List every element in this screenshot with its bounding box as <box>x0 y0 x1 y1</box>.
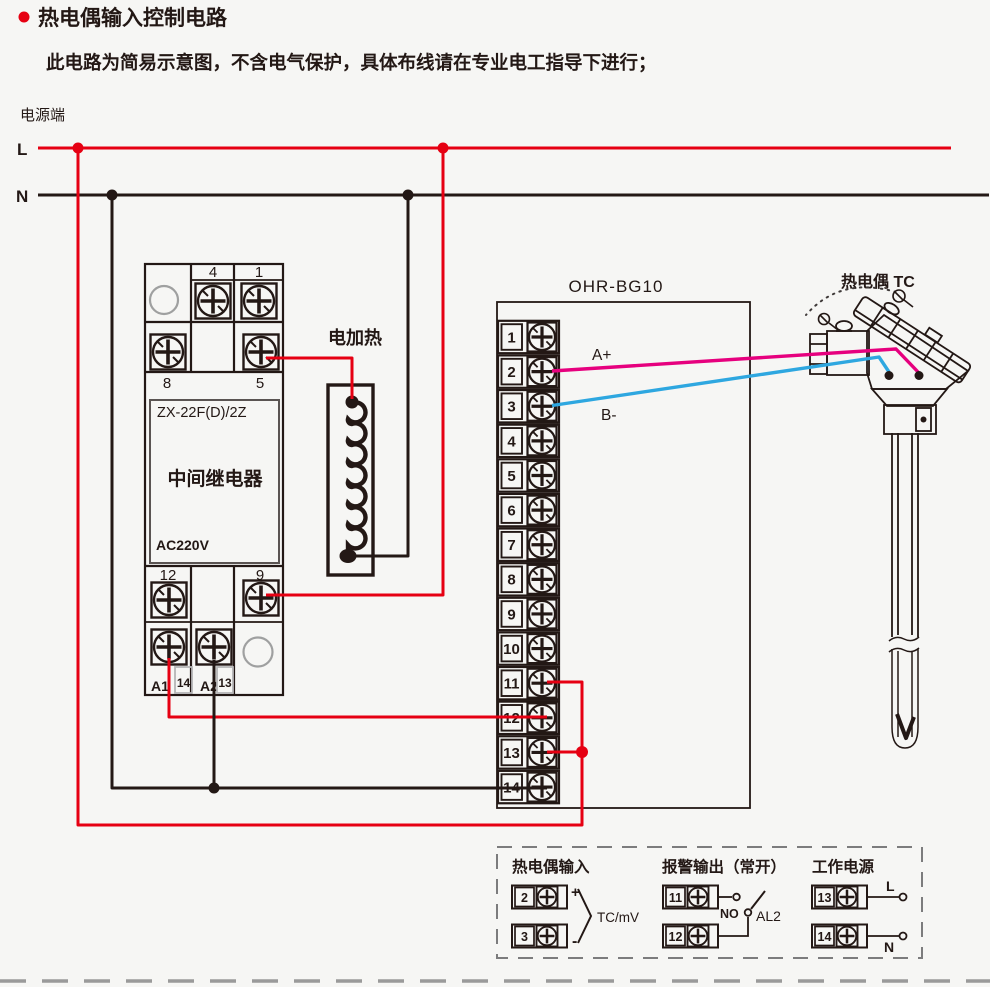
legend-section-title: 热电偶输入 <box>512 857 590 876</box>
ohr-terminal-number: 13 <box>503 745 520 762</box>
legend-terminal-3: 3 <box>512 925 567 948</box>
legend-terminal-screw <box>537 926 558 947</box>
heater-label: 电加热 <box>328 327 382 348</box>
ohr-terminal-8: 8 <box>498 563 559 595</box>
ohr-terminal-number: 6 <box>507 503 515 520</box>
relay-indicator-circle <box>150 286 178 314</box>
ohr-terminal-screw <box>528 461 557 490</box>
legend-terminal-number: 13 <box>818 891 832 905</box>
relay-screw-9 <box>244 581 279 616</box>
ohr-terminal-number: 3 <box>507 399 515 416</box>
relay-model-label: ZX-22F(D)/2Z <box>157 405 247 421</box>
heater: 电加热 <box>328 327 382 575</box>
terminal-legend: 热电偶输入 报警输出（常开） 工作电源 2311121314 + - TC/mV… <box>497 847 922 958</box>
legend-terminal-screw <box>837 887 858 908</box>
legend-terminal-13: 13 <box>812 886 867 909</box>
ohr-terminal-4: 4 <box>498 425 559 457</box>
ohr-terminal-9: 9 <box>498 598 559 630</box>
controller-model-label: OHR-BG10 <box>569 277 664 296</box>
line-n-label: N <box>16 187 28 206</box>
minus-mark: - <box>572 933 577 950</box>
ohr-terminal-2: 2 <box>498 355 559 387</box>
ohr-controller: OHR-BG10 1234567891011121314 A+ B- <box>497 277 750 808</box>
ohr-terminal-6: 6 <box>498 494 559 526</box>
ohr-terminal-screw <box>528 323 557 352</box>
ohr-terminal-number: 4 <box>507 433 516 450</box>
legend-terminal-screw <box>537 887 558 908</box>
power-source-label: 电源端 <box>20 107 65 124</box>
legend-n-label: N <box>884 939 894 955</box>
wire-a-plus-label: A+ <box>592 347 611 364</box>
ohr-terminal-screw <box>528 530 557 559</box>
relay-terminal-label: 4 <box>209 264 217 281</box>
legend-terminal-12: 12 <box>663 925 718 948</box>
legend-terminal-screw <box>688 887 709 908</box>
relay-terminal-label: 14 <box>177 676 191 690</box>
relay-screw-5 <box>244 335 279 370</box>
relay-indicator-circle <box>244 638 273 667</box>
alarm-output-label: AL2 <box>756 908 781 924</box>
page-title: 热电偶输入控制电路 <box>38 6 228 30</box>
relay-voltage-label: AC220V <box>156 537 210 553</box>
legend-terminal-11: 11 <box>663 886 718 909</box>
legend-terminal-2: 2 <box>512 886 567 909</box>
relay-screw-1 <box>242 284 277 319</box>
legend-terminal-14: 14 <box>812 925 867 948</box>
relay-terminal-label: 1 <box>255 264 263 281</box>
legend-terminals: 2311121314 <box>512 886 867 948</box>
ohr-terminal-10: 10 <box>498 632 559 664</box>
legend-l-label: L <box>886 878 895 894</box>
line-l-label: L <box>17 140 27 159</box>
no-contact-label: NO <box>720 907 739 921</box>
relay-terminal-label: A1 <box>151 678 169 694</box>
tc-bracket <box>578 889 591 943</box>
ohr-terminal-7: 7 <box>498 529 559 561</box>
wire-b-minus-label: B- <box>601 407 617 424</box>
ohr-terminal-number: 12 <box>503 710 520 727</box>
tc-note-label: TC/mV <box>597 910 639 925</box>
legend-terminal-number: 14 <box>818 930 832 944</box>
wiring-diagram-page: 热电偶输入控制电路 此电路为简易示意图，不含电气保护，具体布线请在专业电工指导下… <box>0 0 990 987</box>
ohr-terminal-screw <box>528 426 557 455</box>
legend-terminal-screw <box>688 926 709 947</box>
ohr-terminal-number: 1 <box>507 329 515 346</box>
legend-terminal-screw <box>837 926 858 947</box>
relay-terminal-label: 13 <box>218 676 232 690</box>
wiring-diagram: 热电偶输入控制电路 此电路为简易示意图，不含电气保护，具体布线请在专业电工指导下… <box>0 0 990 987</box>
relay-screw-8 <box>151 335 186 370</box>
relay-name-label: 中间继电器 <box>167 467 263 490</box>
ohr-terminal-screw <box>528 599 557 628</box>
ohr-terminal-number: 8 <box>507 572 515 589</box>
relay-terminal-label: 5 <box>256 375 264 392</box>
page-subtitle: 此电路为简易示意图，不含电气保护，具体布线请在专业电工指导下进行； <box>46 52 657 73</box>
ohr-terminal-number: 5 <box>507 468 515 485</box>
relay-screw-12 <box>152 583 187 618</box>
legend-terminal-number: 2 <box>521 891 528 905</box>
ohr-terminal-number: 2 <box>507 364 515 381</box>
ohr-terminal-screw <box>528 634 557 663</box>
ohr-terminal-screw <box>528 565 557 594</box>
relay: 4 1 8 5 ZX-22F(D)/2Z 中间继电器 AC220V 12 9 A… <box>145 264 283 695</box>
thermocouple-probe: 热电偶 TC <box>806 272 976 748</box>
wire-heater-to-n <box>352 195 408 556</box>
wire-thermocouple-b-minus <box>552 357 889 406</box>
ohr-terminal-number: 10 <box>503 641 520 658</box>
legend-terminal-number: 12 <box>669 930 683 944</box>
ohr-terminal-3: 3 <box>498 390 559 422</box>
legend-terminal-number: 11 <box>669 891 682 905</box>
relay-screw-4 <box>196 284 231 319</box>
title-bullet-icon <box>19 12 30 23</box>
legend-section-title: 报警输出（常开） <box>662 857 786 876</box>
heater-coil <box>348 402 366 554</box>
switch-blade <box>751 891 765 909</box>
ohr-terminal-screw <box>528 496 557 525</box>
ohr-terminal-5: 5 <box>498 459 559 491</box>
legend-section-title: 工作电源 <box>812 857 875 876</box>
cap-swing-arc <box>806 287 896 315</box>
ohr-terminal-number: 11 <box>504 676 520 693</box>
legend-terminal-number: 3 <box>521 930 528 944</box>
relay-terminal-label: 8 <box>163 375 171 392</box>
controller-terminal-strip: 1234567891011121314 <box>498 321 559 803</box>
ohr-terminal-1: 1 <box>498 321 559 353</box>
ohr-terminal-number: 9 <box>507 606 515 623</box>
ohr-terminal-number: 7 <box>507 537 515 554</box>
relay-screw-a2 <box>197 630 232 665</box>
